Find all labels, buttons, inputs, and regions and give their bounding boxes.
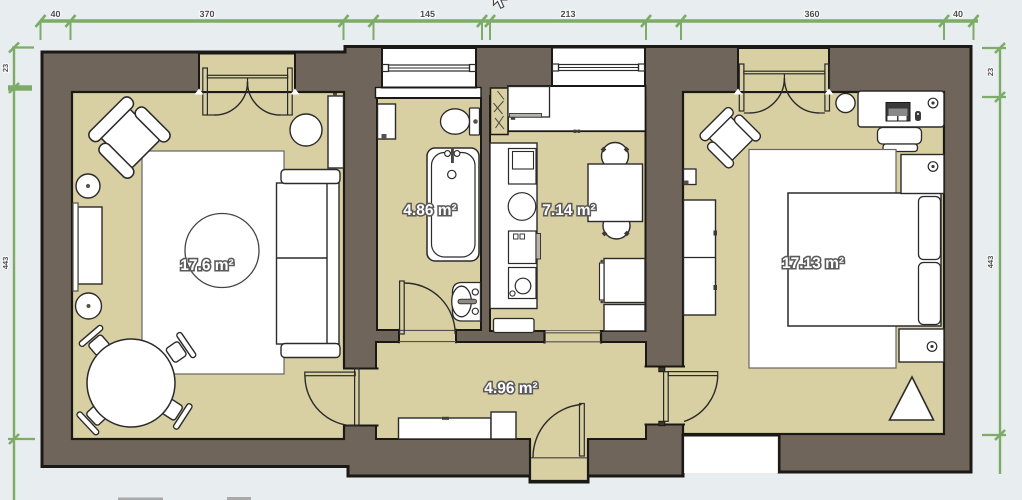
svg-text:23: 23 (986, 68, 995, 76)
svg-text:40: 40 (953, 9, 963, 19)
svg-text:7.14 m²: 7.14 m² (542, 202, 595, 219)
svg-text:17.6 m²: 17.6 m² (180, 257, 233, 274)
svg-text:443: 443 (1, 257, 10, 270)
svg-text:370: 370 (199, 9, 214, 19)
svg-text:213: 213 (560, 9, 575, 19)
svg-text:4.86 m²: 4.86 m² (403, 202, 456, 219)
svg-text:360: 360 (804, 9, 819, 19)
svg-text:443: 443 (986, 256, 995, 269)
svg-text:23: 23 (1, 64, 10, 72)
svg-text:40: 40 (50, 9, 60, 19)
svg-text:17.13 m²: 17.13 m² (782, 255, 844, 272)
svg-text:145: 145 (420, 9, 435, 19)
svg-text:4.96 m²: 4.96 m² (484, 380, 537, 397)
